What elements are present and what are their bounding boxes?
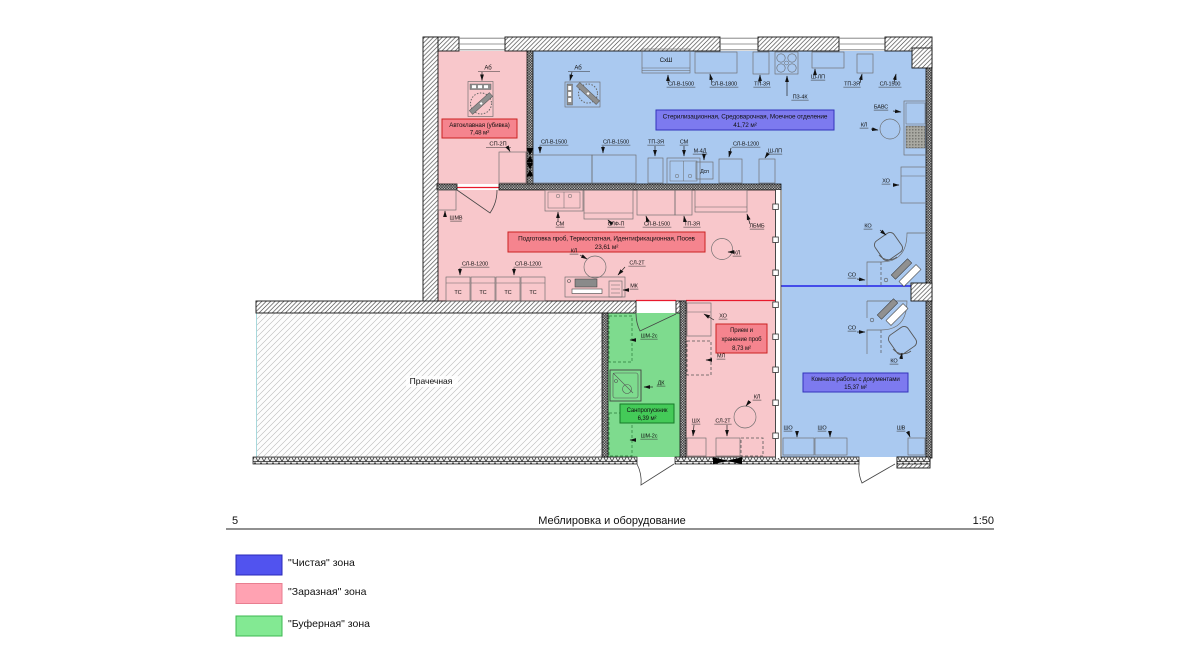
svg-text:"Чистая" зона: "Чистая" зона xyxy=(288,557,355,569)
svg-text:41,72 м²: 41,72 м² xyxy=(733,122,757,129)
svg-text:ТП-3Я: ТП-3Я xyxy=(684,222,700,228)
svg-text:СМ: СМ xyxy=(556,222,565,228)
svg-text:СЛ-2Т: СЛ-2Т xyxy=(715,419,731,425)
svg-text:СЛ-В-1800: СЛ-В-1800 xyxy=(711,82,737,88)
svg-text:Прачечная: Прачечная xyxy=(410,376,453,386)
svg-text:МК: МК xyxy=(630,284,638,290)
svg-text:БАВС: БАВС xyxy=(874,105,888,111)
svg-text:М-4Д: М-4Д xyxy=(694,149,707,155)
svg-text:23,61 м²: 23,61 м² xyxy=(595,244,619,251)
svg-text:СЛ-В-1500: СЛ-В-1500 xyxy=(644,222,670,228)
svg-text:ШМ-2с: ШМ-2с xyxy=(641,434,658,440)
svg-text:"Буферная" зона: "Буферная" зона xyxy=(288,618,370,630)
svg-text:Прием и: Прием и xyxy=(730,328,753,334)
svg-text:ТП-3Я: ТП-3Я xyxy=(648,140,664,146)
svg-text:СЛ-В-1500: СЛ-В-1500 xyxy=(541,140,567,146)
svg-text:Аб: Аб xyxy=(574,66,582,72)
svg-text:СЛ-В-1500: СЛ-В-1500 xyxy=(603,140,629,146)
svg-text:ШМВ: ШМВ xyxy=(450,216,463,222)
svg-text:ТС: ТС xyxy=(479,290,486,296)
svg-text:СЛ-В-1200: СЛ-В-1200 xyxy=(462,262,488,268)
svg-text:ТС: ТС xyxy=(529,290,536,296)
svg-text:Подготовка проб, Термостатная,: Подготовка проб, Термостатная, Идентифик… xyxy=(518,235,695,243)
svg-text:Меблировка и оборудование: Меблировка и оборудование xyxy=(538,515,686,527)
svg-text:8,73 м²: 8,73 м² xyxy=(732,346,751,352)
svg-text:ШО: ШО xyxy=(783,426,793,432)
svg-text:ТС: ТС xyxy=(454,290,461,296)
svg-text:СЛ-В-1200: СЛ-В-1200 xyxy=(733,142,759,148)
svg-text:СЛ-2Т: СЛ-2Т xyxy=(629,261,645,267)
svg-text:6,39 м²: 6,39 м² xyxy=(638,416,657,422)
svg-text:Ш-ЛП: Ш-ЛП xyxy=(768,149,782,155)
svg-text:ШО: ШО xyxy=(817,426,827,432)
svg-text:Стерилизационная, Средоварочна: Стерилизационная, Средоварочная, Моечное… xyxy=(663,114,828,121)
svg-text:5: 5 xyxy=(232,515,238,527)
svg-text:ПЗ-4К: ПЗ-4К xyxy=(793,95,809,101)
svg-text:СЛ-В-1200: СЛ-В-1200 xyxy=(515,262,541,268)
svg-text:СЛФ-П: СЛФ-П xyxy=(608,222,625,228)
svg-text:ХО: ХО xyxy=(882,179,890,185)
svg-text:СЛ-1500: СЛ-1500 xyxy=(880,82,901,88)
svg-text:ТП-3Я: ТП-3Я xyxy=(754,82,770,88)
svg-text:КО: КО xyxy=(890,359,898,365)
svg-text:15,37 м²: 15,37 м² xyxy=(844,384,867,391)
svg-text:МЛ: МЛ xyxy=(717,354,725,360)
svg-text:КЛ: КЛ xyxy=(734,251,741,257)
svg-text:КО: КО xyxy=(864,224,872,230)
svg-text:хранение проб: хранение проб xyxy=(721,337,762,343)
svg-text:КЛ: КЛ xyxy=(754,395,761,401)
svg-text:Автоклавная (убивка): Автоклавная (убивка) xyxy=(449,122,509,129)
svg-text:СО: СО xyxy=(848,326,857,332)
svg-text:ШМ-2с: ШМ-2с xyxy=(641,334,658,340)
svg-text:ШХ: ШХ xyxy=(692,419,701,425)
svg-text:Комната работы с документами: Комната работы с документами xyxy=(811,376,900,383)
svg-text:ХО: ХО xyxy=(719,314,727,320)
svg-text:7,48 м²: 7,48 м² xyxy=(470,130,489,137)
svg-text:Дсп: Дсп xyxy=(700,169,709,175)
svg-text:ТС: ТС xyxy=(504,290,511,296)
svg-text:ШВ: ШВ xyxy=(897,426,906,432)
svg-text:СП-2П: СП-2П xyxy=(489,142,506,148)
svg-text:СО: СО xyxy=(848,273,857,279)
svg-text:СМ: СМ xyxy=(680,140,689,146)
svg-text:Аб: Аб xyxy=(484,66,492,72)
svg-text:Санпропускник: Санпропускник xyxy=(627,408,668,414)
svg-text:ЛБМБ: ЛБМБ xyxy=(749,224,765,230)
svg-text:СхШ: СхШ xyxy=(660,58,673,64)
svg-text:ТП-3Я: ТП-3Я xyxy=(844,82,860,88)
svg-text:КЛ: КЛ xyxy=(571,249,578,255)
svg-text:КЛ: КЛ xyxy=(861,123,868,129)
svg-text:"Заразная" зона: "Заразная" зона xyxy=(288,586,367,598)
svg-text:Ш-ЛП: Ш-ЛП xyxy=(811,75,825,81)
svg-text:1:50: 1:50 xyxy=(973,515,994,527)
svg-text:СЛ-В-1500: СЛ-В-1500 xyxy=(668,82,694,88)
svg-text:ДК: ДК xyxy=(658,381,666,387)
